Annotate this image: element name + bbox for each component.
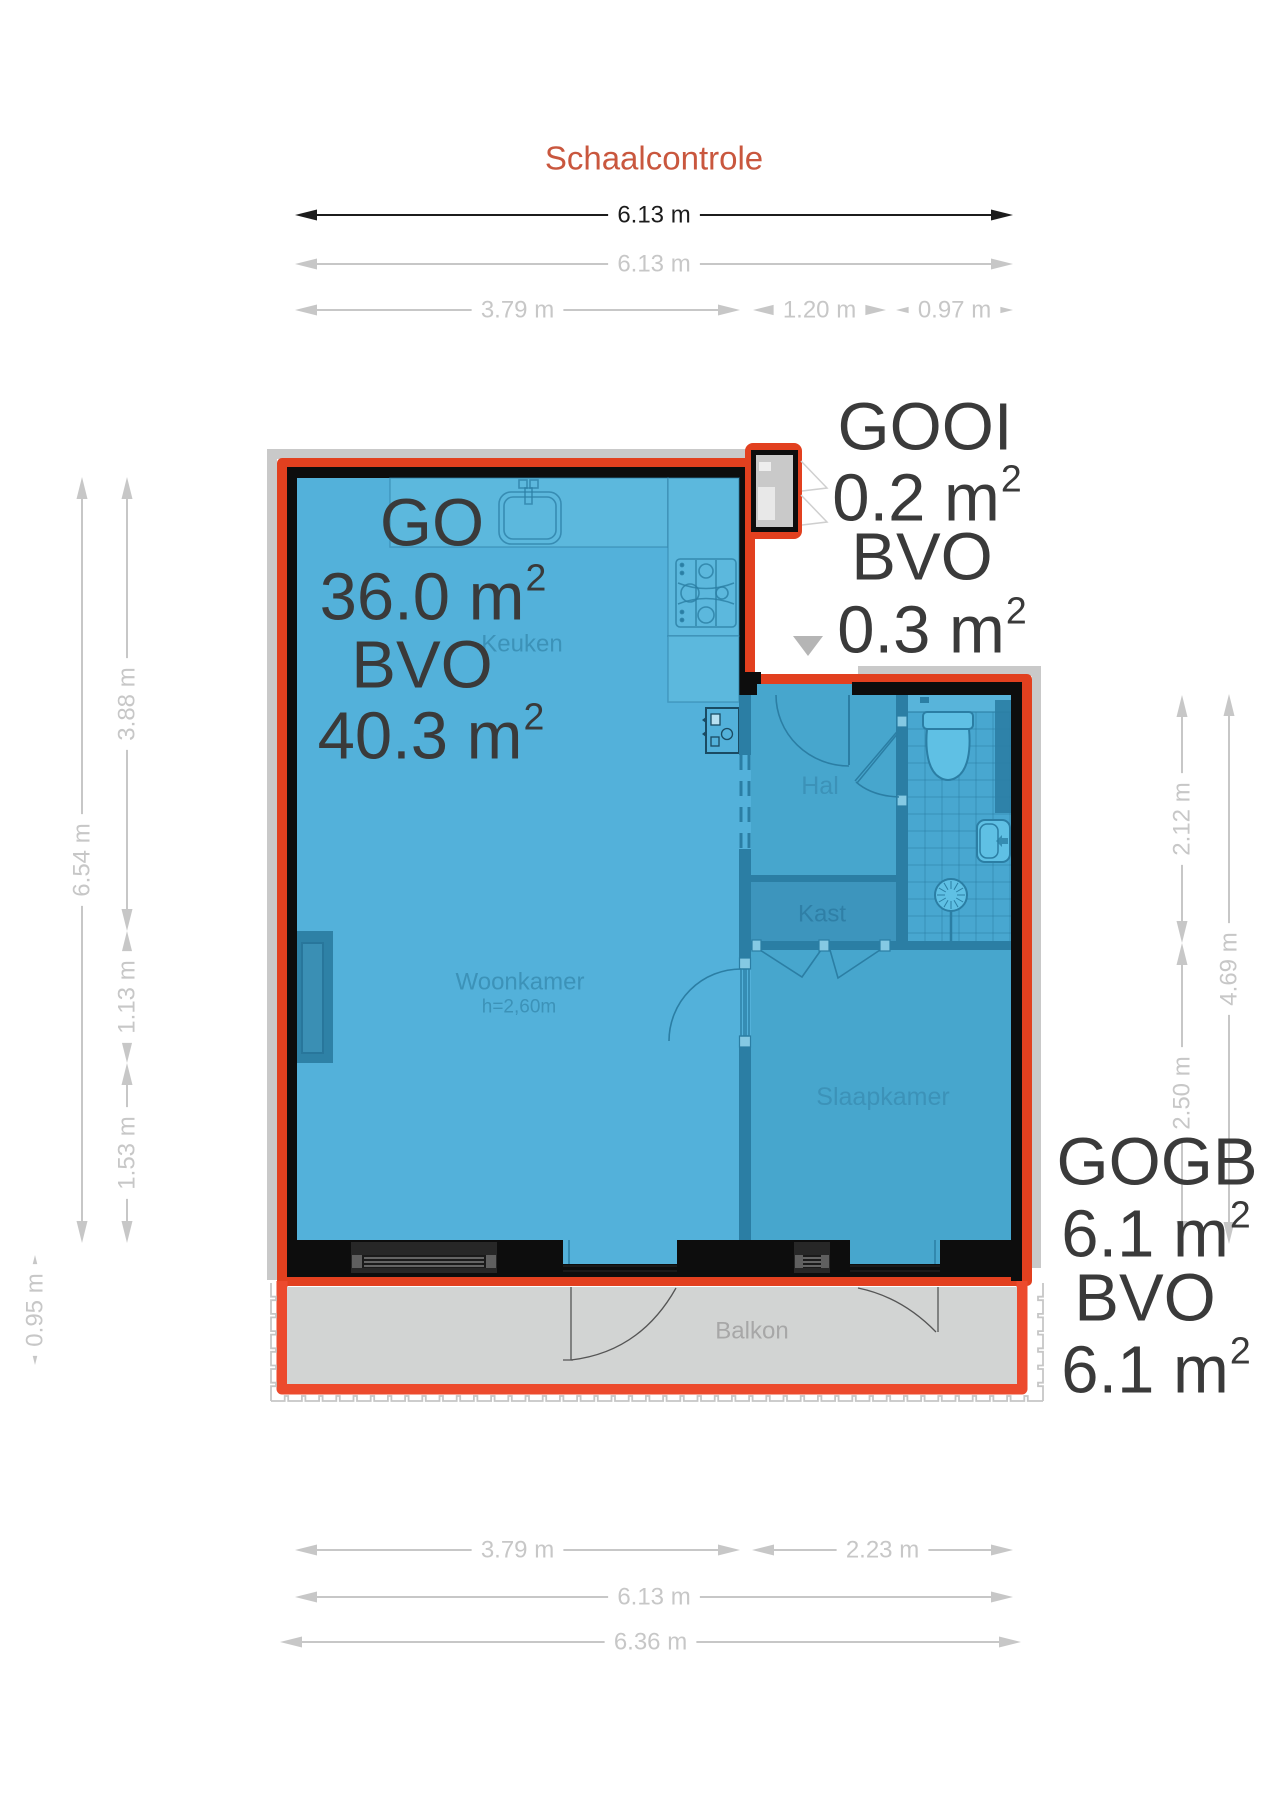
svg-text:2.23 m: 2.23 m: [846, 1537, 919, 1564]
svg-text:Woonkamer: Woonkamer: [456, 969, 585, 996]
svg-text:BVO: BVO: [1074, 1261, 1216, 1336]
svg-text:6.13 m: 6.13 m: [617, 251, 690, 278]
svg-text:GOGB: GOGB: [1056, 1125, 1257, 1200]
svg-text:6.13 m: 6.13 m: [617, 202, 690, 229]
svg-text:6.54 m: 6.54 m: [69, 823, 96, 896]
svg-text:0.97 m: 0.97 m: [918, 297, 991, 324]
svg-text:0.3 m2: 0.3 m2: [837, 590, 1026, 668]
svg-text:Schaalcontrole: Schaalcontrole: [545, 140, 763, 177]
svg-text:40.3 m2: 40.3 m2: [318, 696, 545, 774]
svg-text:BVO: BVO: [351, 628, 493, 703]
svg-text:0.95 m: 0.95 m: [22, 1273, 49, 1346]
svg-text:1.13 m: 1.13 m: [114, 960, 141, 1033]
svg-text:GOOI: GOOI: [838, 390, 1013, 465]
svg-text:Kast: Kast: [798, 901, 846, 928]
svg-text:Keuken: Keuken: [481, 631, 562, 658]
svg-text:4.69 m: 4.69 m: [1216, 932, 1243, 1005]
svg-text:2.12 m: 2.12 m: [1169, 782, 1196, 855]
svg-text:BVO: BVO: [851, 520, 993, 595]
svg-text:Slaapkamer: Slaapkamer: [816, 1083, 949, 1111]
svg-text:3.79 m: 3.79 m: [481, 1537, 554, 1564]
svg-text:Hal: Hal: [801, 772, 839, 800]
svg-text:GO: GO: [380, 486, 484, 561]
svg-text:6.1 m2: 6.1 m2: [1061, 1330, 1250, 1408]
svg-text:3.88 m: 3.88 m: [114, 667, 141, 740]
svg-text:Balkon: Balkon: [715, 1318, 788, 1345]
svg-text:36.0 m2: 36.0 m2: [320, 557, 547, 635]
svg-text:3.79 m: 3.79 m: [481, 297, 554, 324]
svg-text:1.20 m: 1.20 m: [783, 297, 856, 324]
svg-text:2.50 m: 2.50 m: [1169, 1056, 1196, 1129]
svg-text:1.53 m: 1.53 m: [114, 1116, 141, 1189]
svg-text:6.36 m: 6.36 m: [614, 1629, 687, 1656]
svg-text:h=2,60m: h=2,60m: [482, 997, 556, 1018]
svg-text:6.13 m: 6.13 m: [617, 1584, 690, 1611]
